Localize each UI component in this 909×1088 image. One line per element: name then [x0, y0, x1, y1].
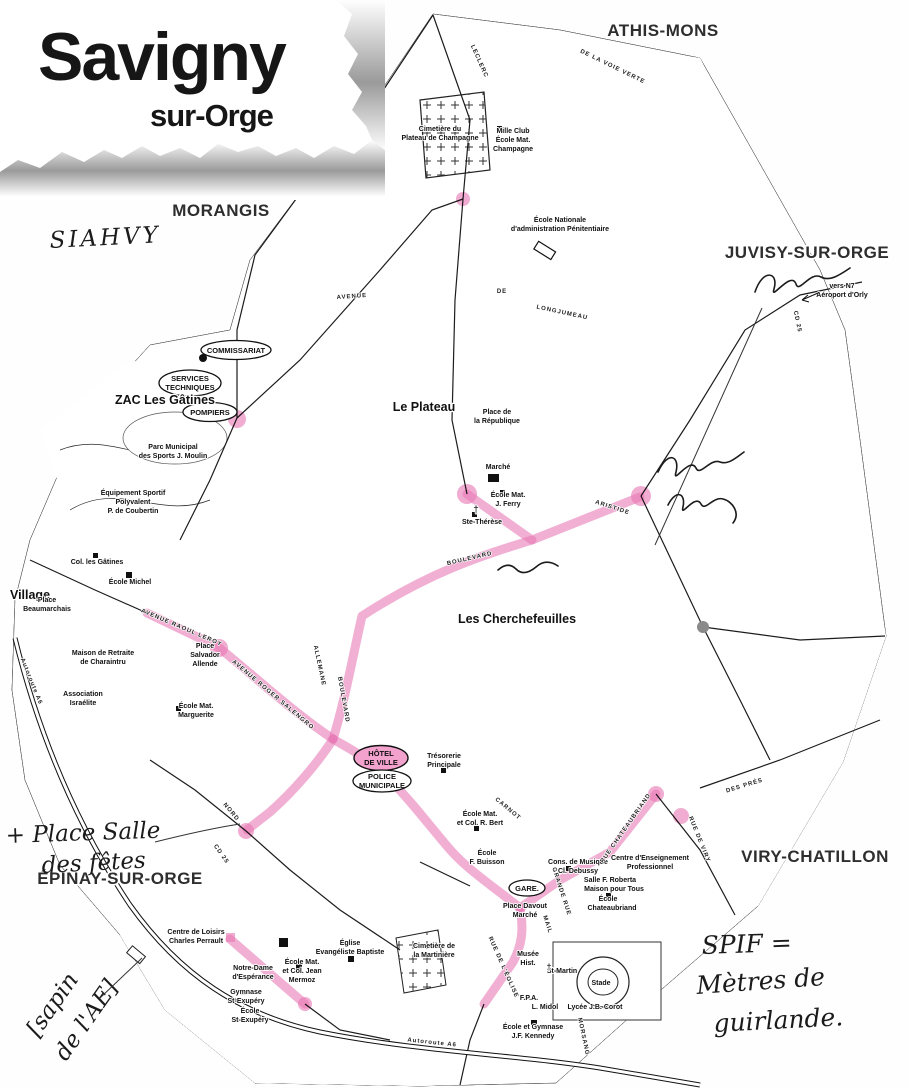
label-perrault: Centre de Loisirs — [167, 929, 224, 936]
label-centre-ens2: Professionnel — [627, 864, 673, 871]
label-eglise-baptiste2: Evangéliste Baptiste — [316, 949, 385, 956]
handwriting-place-salle-2: des fêtes — [41, 848, 147, 879]
label-gym-exupery: Gymnase — [230, 989, 262, 996]
label-place-davout2: Marché — [513, 912, 538, 919]
label-mille-club2: École Mat. — [496, 135, 531, 144]
label-beaumarchais2: Beaumarchais — [23, 606, 71, 613]
label-allende3: Allende — [192, 661, 217, 668]
label-cim-martiniere: Cimetière de — [413, 943, 455, 950]
label-cim-martiniere2: la Martinière — [413, 952, 454, 959]
label-enap: École Nationale — [534, 215, 586, 224]
label-cons-musique: Cons. de Musique — [548, 859, 608, 866]
st-martin-cross-icon: † — [546, 962, 551, 972]
services-label-2: TECHNIQUES — [165, 383, 214, 392]
label-cons-musique2: Cl. Debussy — [558, 868, 598, 875]
map-page: COMMISSARIAT SERVICES TECHNIQUES POMPIER… — [0, 0, 909, 1088]
cemetery-martiniere-crosses — [396, 930, 446, 993]
label-vers-n7: vers N7 — [829, 283, 854, 290]
torn-edge-right — [336, 0, 385, 150]
label-mille-club: Mille Club — [496, 128, 529, 135]
label-kennedy: École et Gymnase — [503, 1022, 563, 1031]
label-republique2: la République — [474, 418, 520, 425]
label-midol: L. Midol — [532, 1004, 558, 1011]
label-retraite: Maison de Retraite — [72, 650, 134, 657]
label-republique: Place de — [483, 409, 512, 416]
label-viry-chatillon: VIRY-CHATILLON — [741, 847, 889, 866]
label-cim-champagne: Cimetière du — [419, 126, 461, 133]
label-tresorerie2: Principale — [427, 762, 461, 769]
label-salle-roberta: Salle F. Roberta — [584, 877, 636, 884]
label-athis-mons: ATHIS-MONS — [607, 21, 718, 40]
label-ecole-buisson: École — [478, 848, 497, 857]
highlight-square-perrault — [226, 933, 235, 942]
label-perrault2: Charles Perrault — [169, 938, 224, 945]
label-ecole-ferry2: J. Ferry — [495, 501, 520, 508]
label-coubertin3: P. de Coubertin — [108, 508, 159, 515]
highlight-dot-salle-des-fetes — [238, 823, 254, 839]
logo-title: Savigny — [38, 18, 285, 96]
label-enap2: d'administration Pénitentiaire — [511, 226, 609, 233]
hdv-label-2: DE VILLE — [364, 758, 398, 767]
label-beaumarchais: Place — [38, 597, 56, 604]
label-place-davout: Place Davout — [503, 903, 548, 910]
label-israelite: Association — [63, 691, 103, 698]
label-marguerite: École Mat. — [179, 701, 214, 710]
label-ecole-chateaubriand2: Chateaubriand — [587, 905, 636, 912]
police-label-1: POLICE — [368, 772, 396, 781]
label-ecole-chateaubriand: École — [599, 894, 618, 903]
handwriting-place-salle-1: + Place Salle — [5, 818, 161, 849]
label-lycee-corot: Lycée J.B. Corot — [568, 1004, 624, 1011]
label-kennedy2: J.F. Kennedy — [512, 1033, 555, 1040]
label-maison-pour-tous: Maison pour Tous — [584, 886, 644, 893]
label-coubertin2: Polyvalent — [115, 499, 151, 506]
handwriting-spif-3: guirlande. — [713, 1002, 844, 1038]
label-marguerite2: Marguerite — [178, 712, 214, 719]
label-cherchefeuilles: Les Cherchefeuilles — [458, 612, 576, 626]
label-cim-champagne2: Plateau de Champagne — [401, 135, 478, 142]
roundabout-dot — [697, 621, 709, 633]
label-musee2: Hist. — [520, 960, 535, 967]
label-mermoz3: Mermoz — [289, 977, 316, 984]
label-ecole-exupery: École — [241, 1006, 260, 1015]
handwriting-spif-2: Mètres de — [694, 962, 825, 1000]
label-parc-moulin: Parc Municipal — [148, 444, 197, 451]
label-allende2: Salvador — [190, 652, 220, 659]
label-notre-dame: Notre-Dame — [233, 965, 273, 972]
highlight-dot-viry1 — [648, 786, 664, 802]
label-ecole-buisson2: F. Buisson — [469, 859, 504, 866]
label-morangis: MORANGIS — [172, 201, 270, 220]
pompiers-label: POMPIERS — [190, 408, 230, 417]
label-fpa: F.P.A. — [520, 995, 538, 1002]
label-ecole-exupery2: St-Exupéry — [232, 1017, 269, 1024]
label-zac-gatines: ZAC Les Gâtines — [115, 393, 215, 407]
label-parc-moulin2: des Sports J. Moulin — [139, 453, 207, 460]
label-eglise-baptiste: Église — [340, 938, 361, 947]
label-le-plateau: Le Plateau — [393, 400, 456, 414]
services-label-1: SERVICES — [171, 374, 209, 383]
torn-edge-bottom — [0, 140, 385, 196]
highlight-dot-esperance — [298, 997, 312, 1011]
label-ecole-bert: École Mat. — [463, 809, 498, 818]
hdv-label-1: HÔTEL — [368, 749, 394, 758]
label-vers-n7-2: Aéroport d'Orly — [816, 292, 868, 299]
label-ste-therese: Ste-Thérèse — [462, 519, 502, 526]
label-ecole-ferry: École Mat. — [491, 490, 526, 499]
label-col-gatines: Col. les Gâtines — [71, 559, 124, 566]
label-retraite2: de Charaintru — [80, 659, 126, 666]
label-mille-club3: Champagne — [493, 146, 533, 153]
label-stade: Stade — [591, 980, 610, 987]
label-israelite2: Israélite — [70, 700, 97, 707]
street-de: DE — [497, 289, 507, 295]
commissariat-label: COMMISSARIAT — [207, 346, 266, 355]
label-juvisy: JUVISY-SUR-ORGE — [725, 243, 889, 262]
label-notre-dame2: d'Espérance — [232, 974, 273, 981]
label-marche: Marché — [486, 464, 511, 471]
highlight-dot-aristide — [631, 486, 651, 506]
logo-block: Savigny sur-Orge — [0, 0, 385, 200]
gare-label: GARE. — [515, 884, 539, 893]
label-gym-exupery2: St-Exupéry — [228, 998, 265, 1005]
highlight-dot-viry2 — [673, 808, 689, 824]
label-mermoz2: et Col. Jean — [282, 968, 321, 975]
highlight-dot-north — [456, 192, 470, 206]
church-cross-icon: † — [473, 505, 479, 516]
handwriting-spif-1: SPIF = — [701, 928, 792, 960]
label-centre-ens: Centre d'Enseignement — [611, 855, 690, 862]
label-ecole-bert2: et Col. R. Bert — [457, 820, 504, 827]
label-musee: Musée — [517, 951, 539, 958]
handwriting-siahvy: SIAHVY — [49, 222, 162, 254]
label-coubertin: Équipement Sportif — [101, 488, 166, 497]
logo-subtitle: sur-Orge — [150, 98, 273, 134]
label-tresorerie: Trésorerie — [427, 753, 461, 760]
label-ecole-michel: École Michel — [109, 577, 151, 586]
label-mermoz: École Mat. — [285, 957, 320, 966]
police-label-2: MUNICIPALE — [359, 781, 405, 790]
